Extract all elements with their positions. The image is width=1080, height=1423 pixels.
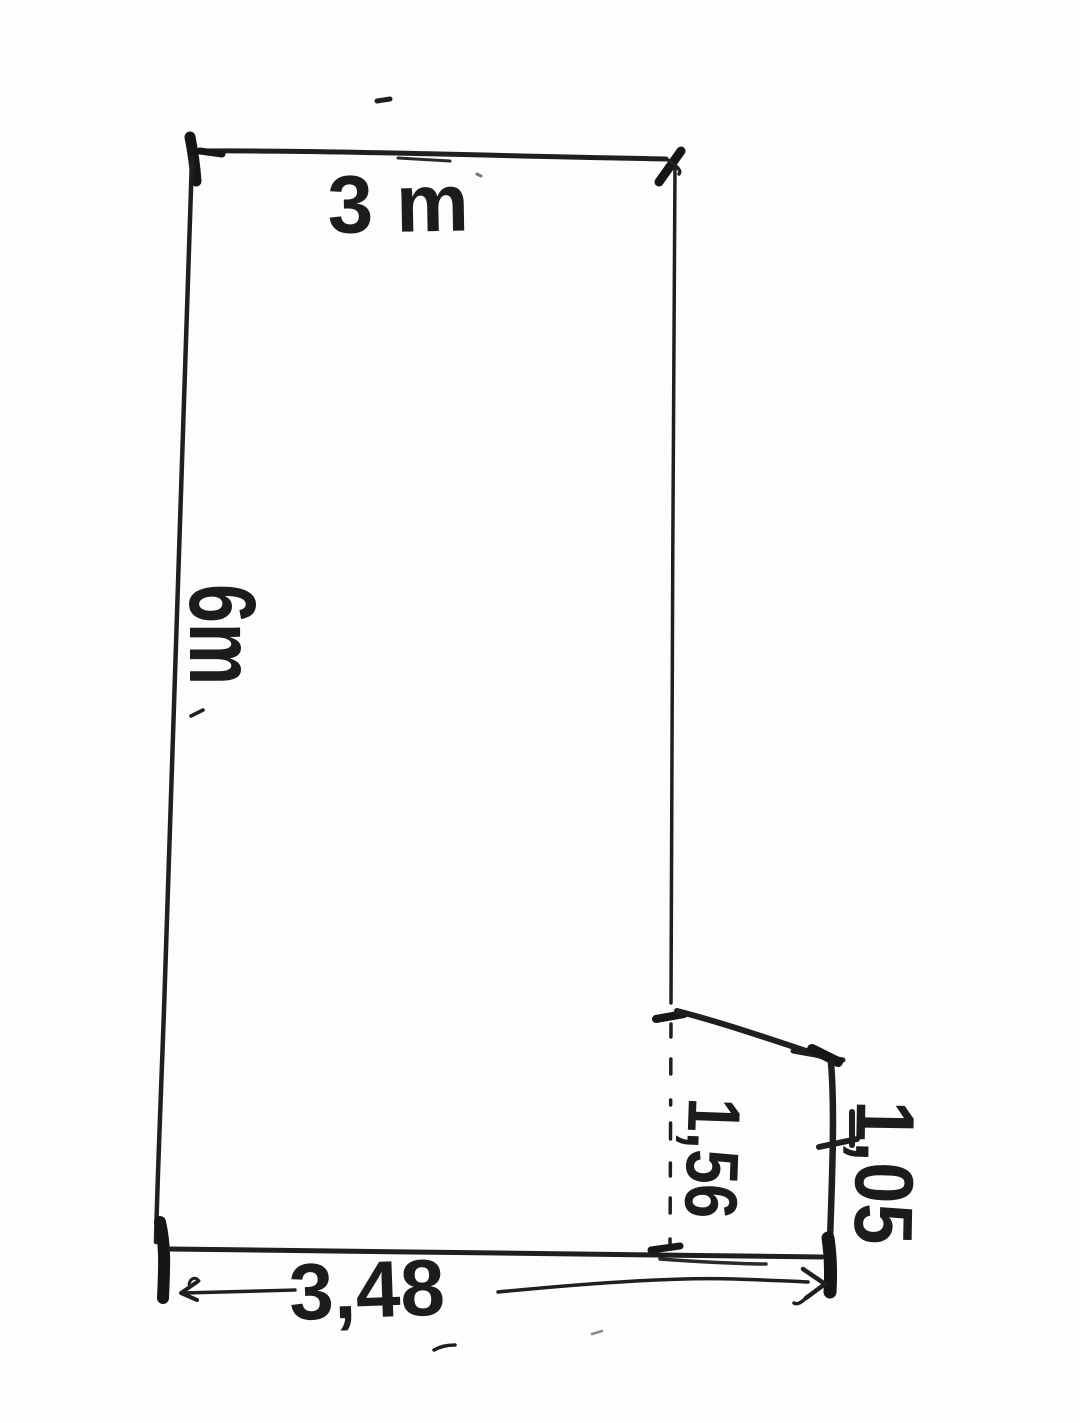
svg-text:1,05: 1,05 (837, 1100, 932, 1246)
svg-text:6m: 6m (170, 584, 276, 685)
svg-text:1,56: 1,56 (669, 1096, 757, 1219)
svg-text:3 m: 3 m (327, 158, 470, 251)
svg-text:3,48: 3,48 (287, 1243, 446, 1337)
